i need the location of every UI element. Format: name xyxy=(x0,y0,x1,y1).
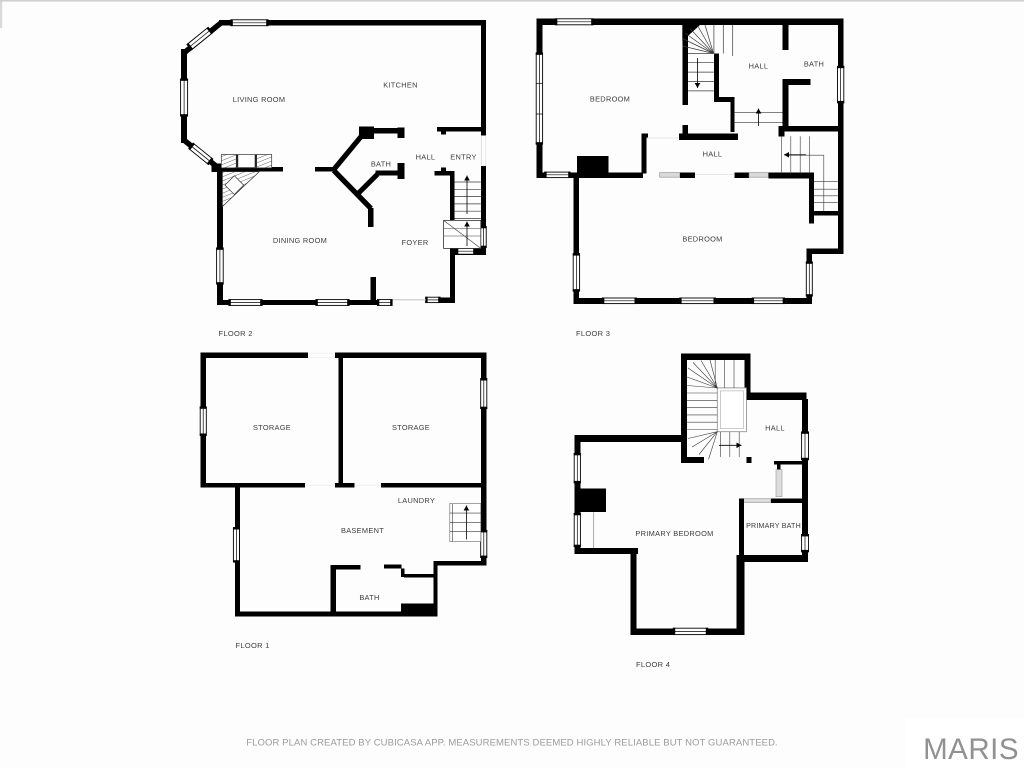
svg-text:HALL: HALL xyxy=(703,150,723,159)
svg-text:BEDROOM: BEDROOM xyxy=(590,95,630,104)
svg-text:FLOOR 4: FLOOR 4 xyxy=(636,660,670,669)
svg-text:BATH: BATH xyxy=(804,60,824,69)
svg-text:PRIMARY BEDROOM: PRIMARY BEDROOM xyxy=(635,529,713,538)
svg-text:HALL: HALL xyxy=(416,153,436,162)
svg-text:LAUNDRY: LAUNDRY xyxy=(398,496,435,505)
svg-text:KITCHEN: KITCHEN xyxy=(383,81,418,90)
svg-text:LIVING ROOM: LIVING ROOM xyxy=(233,95,286,104)
svg-text:FOYER: FOYER xyxy=(402,238,429,247)
svg-text:BEDROOM: BEDROOM xyxy=(682,235,722,244)
svg-text:FLOOR 2: FLOOR 2 xyxy=(219,329,253,338)
svg-text:ENTRY: ENTRY xyxy=(450,153,476,162)
svg-text:DINING ROOM: DINING ROOM xyxy=(273,236,327,245)
svg-text:PRIMARY BATH: PRIMARY BATH xyxy=(746,522,801,530)
svg-text:FLOOR PLAN CREATED BY CUBICASA: FLOOR PLAN CREATED BY CUBICASA APP. MEAS… xyxy=(246,738,778,749)
svg-text:BATH: BATH xyxy=(359,593,379,602)
svg-text:BATH: BATH xyxy=(371,160,391,169)
svg-text:MARIS: MARIS xyxy=(923,733,1019,766)
svg-text:STORAGE: STORAGE xyxy=(253,423,291,432)
svg-text:STORAGE: STORAGE xyxy=(392,423,430,432)
svg-text:FLOOR 1: FLOOR 1 xyxy=(236,641,270,650)
svg-text:FLOOR 3: FLOOR 3 xyxy=(576,329,610,338)
svg-text:HALL: HALL xyxy=(765,424,785,433)
svg-text:HALL: HALL xyxy=(749,62,769,71)
svg-text:BASEMENT: BASEMENT xyxy=(341,526,384,535)
